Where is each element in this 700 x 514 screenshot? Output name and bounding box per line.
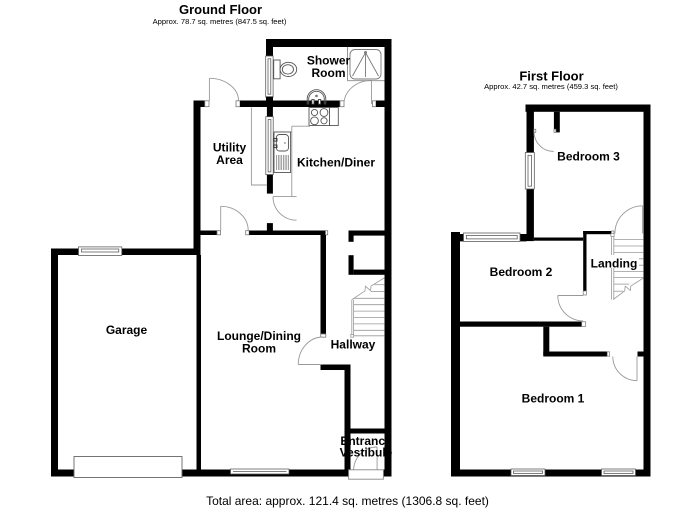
svg-text:Room: Room	[242, 342, 276, 356]
svg-text:Ground Floor: Ground Floor	[179, 2, 262, 17]
svg-text:Kitchen/Diner: Kitchen/Diner	[297, 156, 375, 170]
svg-text:Area: Area	[216, 153, 243, 167]
svg-text:Total area: approx. 121.4 sq.: Total area: approx. 121.4 sq. metres (13…	[206, 494, 489, 508]
svg-text:Room: Room	[312, 66, 346, 80]
svg-text:Bedroom 3: Bedroom 3	[557, 150, 620, 164]
svg-text:Bedroom 2: Bedroom 2	[490, 265, 553, 279]
svg-text:Landing: Landing	[591, 257, 638, 271]
svg-text:Approx. 42.7 sq. metres (459.3: Approx. 42.7 sq. metres (459.3 sq. feet)	[484, 82, 618, 91]
svg-text:Hallway: Hallway	[331, 338, 376, 352]
svg-text:Bedroom 1: Bedroom 1	[522, 392, 585, 406]
svg-text:Vestibule: Vestibule	[340, 445, 393, 459]
svg-text:Garage: Garage	[106, 323, 148, 337]
svg-text:Approx. 78.7 sq. metres (847.5: Approx. 78.7 sq. metres (847.5 sq. feet)	[153, 17, 287, 26]
